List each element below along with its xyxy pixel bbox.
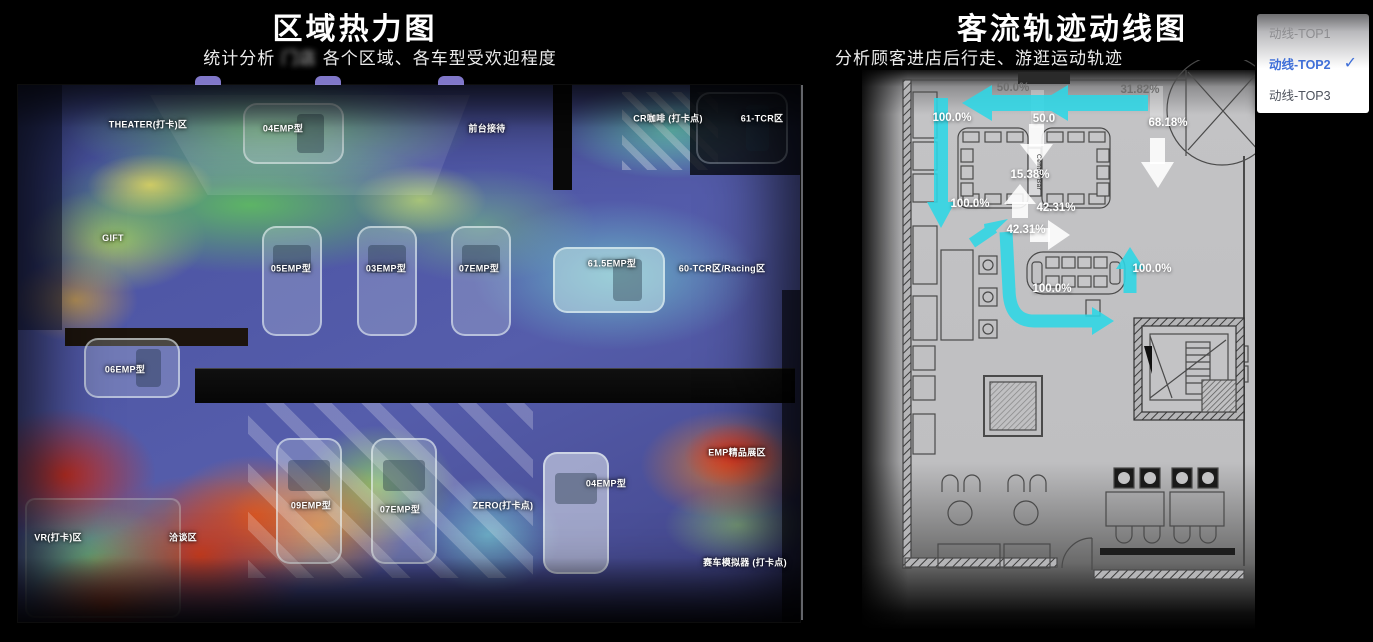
car-shape	[357, 226, 417, 336]
heat-label: EMP精品展区	[708, 446, 766, 459]
dark-zone	[782, 290, 800, 622]
heat-label: 赛车模拟器 (打卡点)	[703, 556, 787, 569]
heat-label: 05EMP型	[271, 262, 311, 275]
route-dropdown-menu[interactable]: 动线-TOP1动线-TOP2✓动线-TOP3	[1257, 14, 1369, 113]
heat-label: ZERO(打卡点)	[473, 499, 534, 512]
flow-label: 100.0%	[932, 112, 971, 124]
heat-label: 07EMP型	[459, 262, 499, 275]
dropdown-item-动线-TOP1[interactable]: 动线-TOP1	[1257, 17, 1369, 48]
wall	[195, 368, 795, 403]
heat-label: 09EMP型	[291, 499, 331, 512]
flow-label: 42.31%	[1036, 202, 1075, 214]
heat-label: 06EMP型	[105, 363, 145, 376]
car-shape	[262, 226, 322, 336]
dropdown-item-label: 动线-TOP3	[1269, 85, 1331, 104]
flow-label: 50.0	[1033, 113, 1055, 125]
right-panel-subtitle: 分析顾客进店后行走、游逛运动轨迹	[835, 44, 1123, 69]
dropdown-item-label: 动线-TOP1	[1269, 23, 1331, 42]
car-shape	[696, 92, 788, 164]
flow-label: 15.38%	[1010, 169, 1049, 181]
flow-label: 42.31%	[1006, 224, 1045, 236]
heat-label: 前台接待	[468, 122, 505, 135]
heat-label: 04EMP型	[263, 122, 303, 135]
right-panel-title: 客流轨迹动线图	[930, 4, 1215, 48]
dropdown-item-动线-TOP2[interactable]: 动线-TOP2✓	[1257, 48, 1369, 79]
heat-label: THEATER(打卡)区	[109, 118, 187, 131]
heat-label: 61-TCR区	[741, 112, 784, 125]
wall	[553, 85, 572, 190]
left-panel-subtitle: 统计分析 门店 各个区域、各车型受欢迎程度	[185, 44, 575, 69]
dark-zone	[18, 85, 62, 330]
heat-label: GIFT	[102, 233, 124, 243]
floorplan-panel	[862, 60, 1255, 637]
dropdown-item-label: 动线-TOP2	[1269, 54, 1331, 73]
car-shape	[451, 226, 511, 336]
dropdown-item-动线-TOP3[interactable]: 动线-TOP3	[1257, 79, 1369, 110]
heat-label: CR咖啡 (打卡点)	[633, 112, 703, 125]
heat-label: 洽谈区	[169, 531, 197, 544]
heat-label: 07EMP型	[380, 503, 420, 516]
subtitle-suffix: 各个区域、各车型受欢迎程度	[323, 49, 557, 68]
heat-label: 04EMP型	[586, 477, 626, 490]
subtitle-blurred-word: 门店	[281, 49, 317, 68]
flow-label: 100.0%	[1032, 283, 1071, 295]
car-shape	[371, 438, 437, 564]
check-icon: ✓	[1344, 56, 1357, 72]
left-panel-title: 区域热力图	[195, 4, 515, 48]
vr-room-outline	[25, 498, 181, 618]
heat-label: 60-TCR区/Racing区	[679, 262, 766, 275]
heat-label: 03EMP型	[366, 262, 406, 275]
heat-label: VR(打卡)区	[34, 531, 82, 544]
subtitle-prefix: 统计分析	[203, 49, 275, 68]
panel-divider	[801, 85, 803, 620]
flow-label: 31.82%	[1120, 84, 1159, 96]
flow-label: 50.0%	[997, 82, 1030, 94]
floorplan-svg	[862, 60, 1255, 637]
flow-label: 100.0%	[1132, 263, 1171, 275]
flow-label: 100.0%	[950, 198, 989, 210]
heat-label: 61.5EMP型	[588, 257, 636, 270]
car-shape	[543, 452, 609, 574]
left-edge-fade	[862, 70, 908, 630]
flow-label: 68.18%	[1148, 117, 1187, 129]
